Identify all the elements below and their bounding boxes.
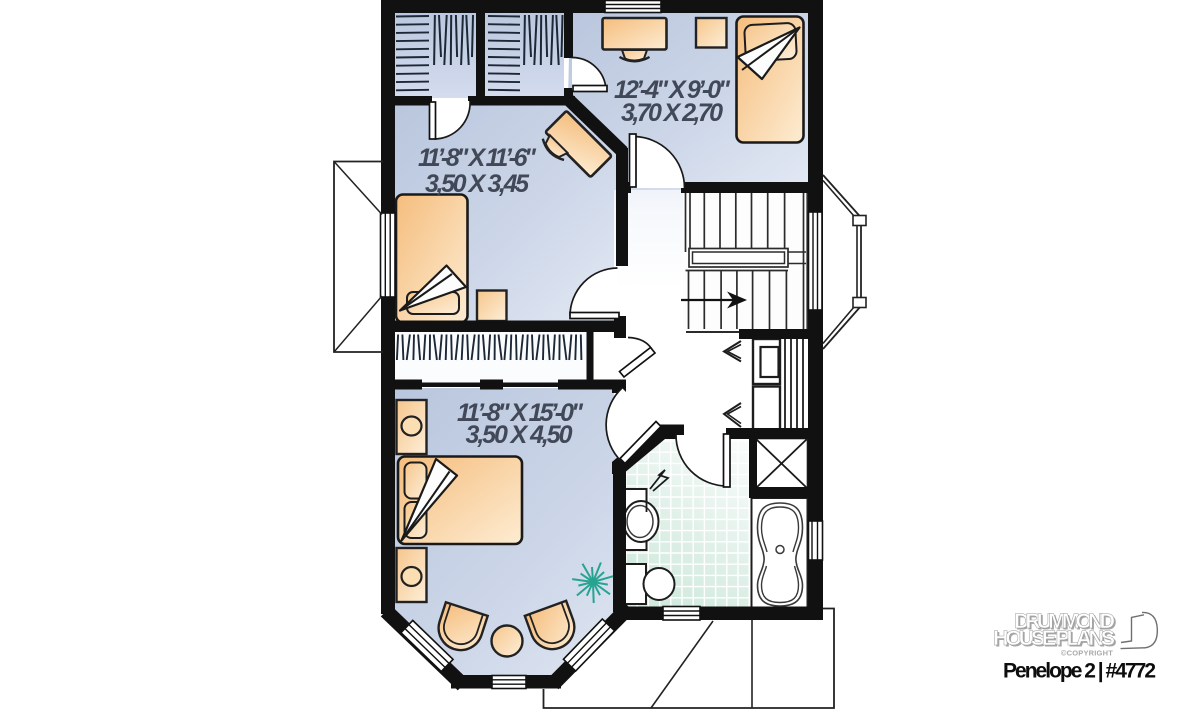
svg-text:HOUSE PLANS: HOUSE PLANS bbox=[993, 626, 1115, 650]
svg-text:Penelope 2 | #4772: Penelope 2 | #4772 bbox=[1003, 660, 1156, 683]
svg-text:3,50 X 3,45: 3,50 X 3,45 bbox=[425, 170, 530, 198]
svg-text:3,70 X 2,70: 3,70 X 2,70 bbox=[621, 99, 723, 127]
svg-text:3,50 X 4,50: 3,50 X 4,50 bbox=[466, 421, 573, 449]
svg-text:11’-8" X 11’-6": 11’-8" X 11’-6" bbox=[418, 144, 537, 172]
svg-text:©COPYRIGHT: ©COPYRIGHT bbox=[1061, 649, 1113, 658]
